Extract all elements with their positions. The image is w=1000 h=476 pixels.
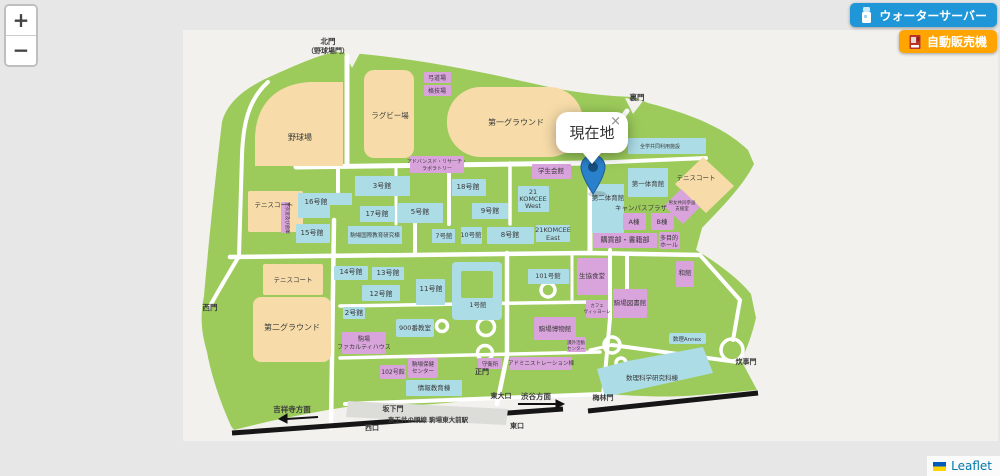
map-label: 駒場保健 (412, 360, 435, 368)
map-label: 和館 (679, 268, 693, 277)
map-label: 弓道場 (428, 74, 446, 82)
map-label: A棟 (629, 217, 640, 226)
map-label: 多目的 (660, 234, 678, 242)
map-label: 102号館 (381, 368, 404, 376)
map-label: 12号館 (370, 289, 393, 298)
map-label: 守衛所 (482, 360, 499, 368)
map-label: 第一体育館 (632, 179, 665, 188)
zoom-out-button[interactable]: − (6, 36, 36, 65)
map-label: 2号館 (345, 308, 363, 317)
map-label: 数理Annex (673, 335, 702, 343)
map-label: 支援室 (675, 205, 689, 212)
map-label: アドバンスド・リサーチ・ (407, 159, 467, 165)
map-label: ヴィッヨーレ (584, 308, 611, 315)
map-label: 吉祥寺方面 (273, 404, 311, 414)
map-attribution: Leaflet (927, 456, 1000, 476)
map-label: 東口 (510, 421, 524, 430)
map-label: 梅林門 (593, 393, 614, 402)
map-label: 情報教育棟 (418, 383, 451, 392)
map-label: 男女共同参画 (669, 199, 696, 206)
field-tennis-a (248, 191, 303, 232)
map-label: 渋谷方面 (521, 391, 551, 401)
map-label: 野球場 (288, 132, 312, 142)
map-label: 駒場博物館 (539, 324, 572, 333)
map-label: 西門 (203, 303, 218, 312)
map-label: カフェ (590, 303, 604, 309)
map-label: East (546, 234, 560, 242)
ukraine-flag-icon (933, 462, 946, 471)
water-server-button[interactable]: ウォーターサーバー (850, 3, 997, 27)
map-label: 格技場 (428, 87, 446, 95)
map-label: 数理科学研究科棟 (626, 373, 679, 382)
map-label: 7号館 (435, 231, 453, 240)
map-label: テニスコート (274, 276, 313, 284)
map-label: 駒場図書館 (614, 298, 647, 307)
vending-machine-icon (909, 35, 921, 49)
map-label: 購買部・書籍部 (601, 235, 650, 244)
map-label: 生協食堂 (579, 271, 606, 280)
map-label: 駒場 (358, 335, 370, 343)
map-label: 正門 (475, 367, 489, 376)
water-server-icon (860, 7, 873, 23)
map-label: キャンパスプラザ (615, 204, 668, 212)
vending-machine-button[interactable]: 自動販売機 (899, 30, 997, 53)
map-label: 課外活動 (567, 339, 585, 346)
water-server-label: ウォーターサーバー (879, 7, 987, 24)
map-label: センター (412, 367, 434, 375)
campus-map-image: 野球場ラグビー場第一グラウンド第二グラウンドテニスコートテニスコートテニスコート… (183, 30, 998, 441)
map-label: ホール (660, 242, 678, 249)
popup-close-button[interactable]: × (610, 115, 621, 128)
popup-tail (583, 153, 601, 164)
leaflet-attribution-link[interactable]: Leaflet (951, 459, 992, 473)
zoom-control: + − (4, 4, 38, 67)
map-label: 3号館 (373, 181, 391, 190)
map-label: 裏門 (629, 92, 645, 102)
map-label: 10号館 (460, 230, 482, 239)
map-label: アドミニストレーション棟 (508, 359, 574, 367)
map-label: 9号館 (481, 206, 499, 215)
map-label: 5号館 (411, 207, 429, 216)
map-label: 8号館 (501, 230, 519, 239)
map-label: 駒場国際教育研究棟 (350, 231, 400, 239)
map-label: （野球場門） (307, 46, 349, 55)
map-label: ファカルティハウス (337, 343, 391, 351)
map-label: 14号館 (340, 267, 363, 276)
vending-machine-label: 自動販売機 (927, 33, 987, 50)
map-label: テニスコート (677, 174, 716, 182)
map-label: 18号館 (457, 182, 480, 191)
courtyard-green (461, 271, 493, 298)
map-label: 21KOMCEE (535, 226, 571, 234)
map-label: 第二グラウンド (264, 322, 320, 332)
map-label: B棟 (657, 217, 668, 226)
location-popup: 現在地 × (556, 112, 628, 153)
map-label: 17号館 (366, 209, 389, 218)
map-label: 北門 (321, 36, 336, 46)
map-label: 炊事門 (736, 357, 757, 366)
map-label: 101号館 (535, 271, 561, 280)
map-label: West (525, 202, 541, 210)
map-label: 15号館 (301, 228, 324, 237)
map-label: センター (567, 345, 585, 352)
map-label: 西口 (365, 424, 379, 432)
map-label: ラグビー場 (371, 110, 409, 120)
map-label: 11号館 (420, 284, 443, 293)
map-label: 学生会館 (538, 166, 565, 175)
map-label: 13号館 (377, 268, 400, 277)
arrow-kichijoji (286, 417, 318, 419)
zoom-in-button[interactable]: + (6, 6, 36, 36)
map-label: 900番教室 (399, 323, 431, 332)
map-label: 坂下門 (383, 404, 404, 413)
map-label: 1号館 (469, 300, 487, 309)
map-label: 16号館 (305, 197, 328, 206)
popup-title: 現在地 (569, 122, 614, 143)
map-label: 全学共同利用施設 (640, 143, 680, 150)
map-label: 更衣室及び倉庫 (284, 202, 291, 234)
map-label: 第一グラウンド (488, 117, 544, 127)
map-label: 京王井の頭線 駒場東大前駅 (388, 415, 469, 424)
map-label: ラボラトリー (422, 165, 452, 172)
leaflet-map[interactable]: 野球場ラグビー場第一グラウンド第二グラウンドテニスコートテニスコートテニスコート… (0, 0, 1000, 476)
map-label: 東大口 (491, 391, 512, 400)
